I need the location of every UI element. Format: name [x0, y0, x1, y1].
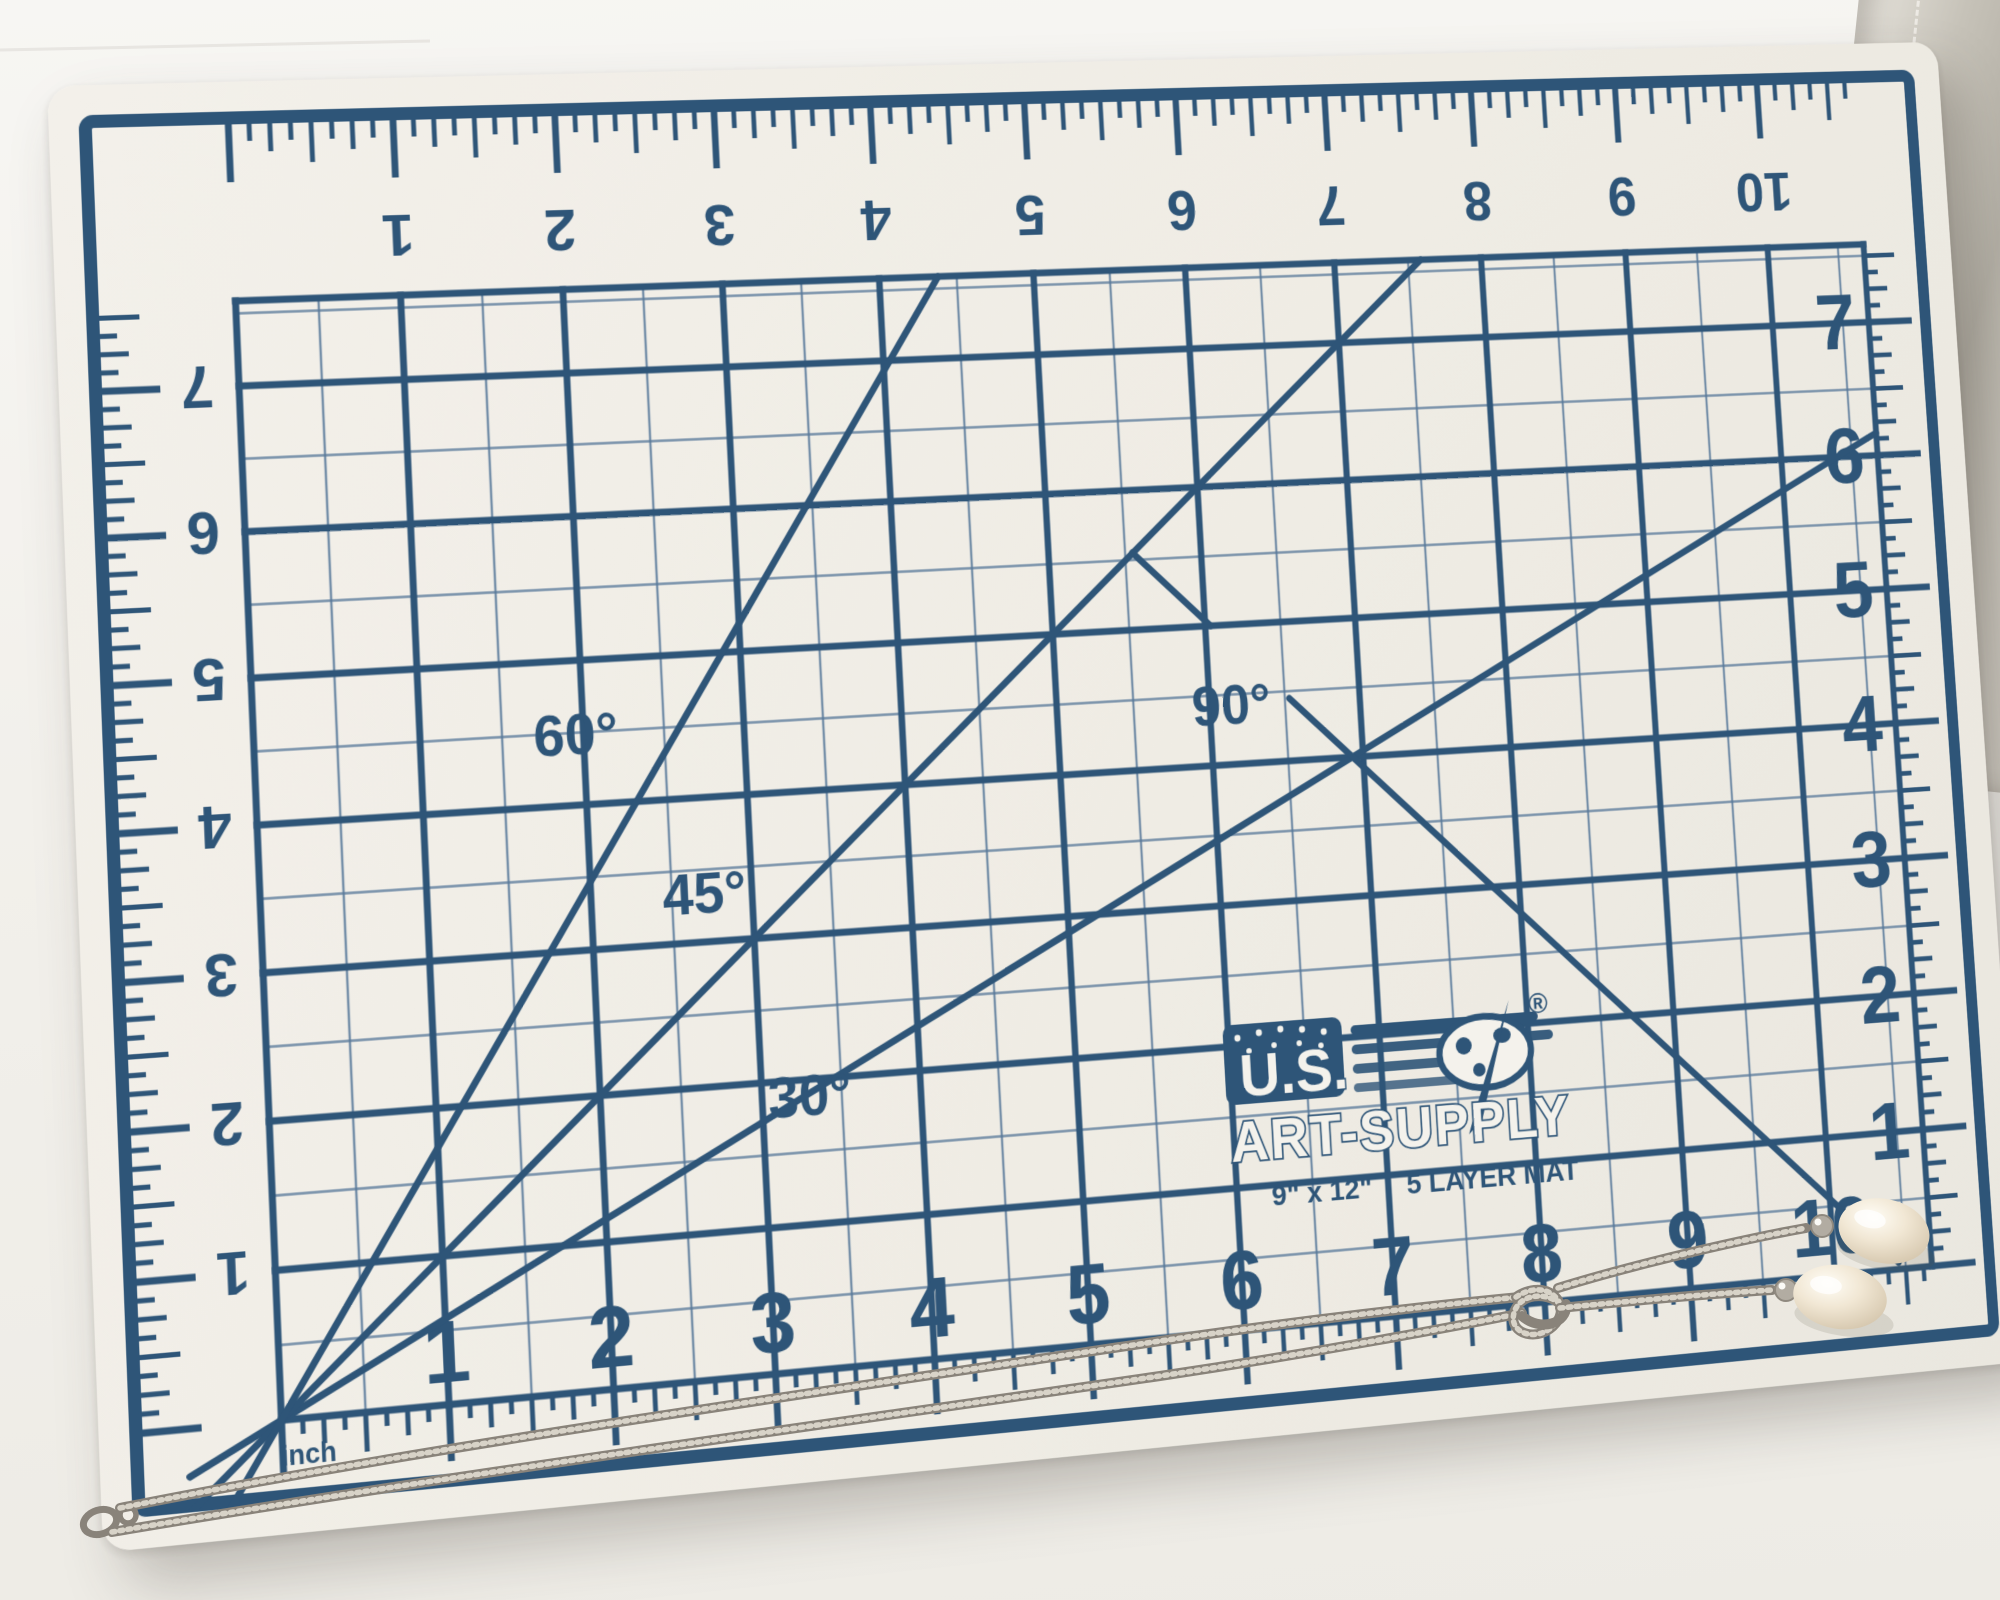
photo-scene: 12345678910 7654321 12345678910 7654321 … — [0, 0, 2000, 1600]
chain — [112, 1228, 1806, 1532]
chain-tail-lower-texture — [1560, 1290, 1772, 1308]
chain-strand-lower-texture — [112, 1313, 1522, 1532]
chain-strand-upper — [120, 1297, 1520, 1508]
bead-highlight — [1815, 1219, 1822, 1226]
pearl-necklace — [0, 0, 2000, 1600]
chain-strand-upper-texture — [120, 1297, 1520, 1508]
silver-bead — [1811, 1215, 1833, 1237]
bead-highlight — [1779, 1283, 1786, 1290]
